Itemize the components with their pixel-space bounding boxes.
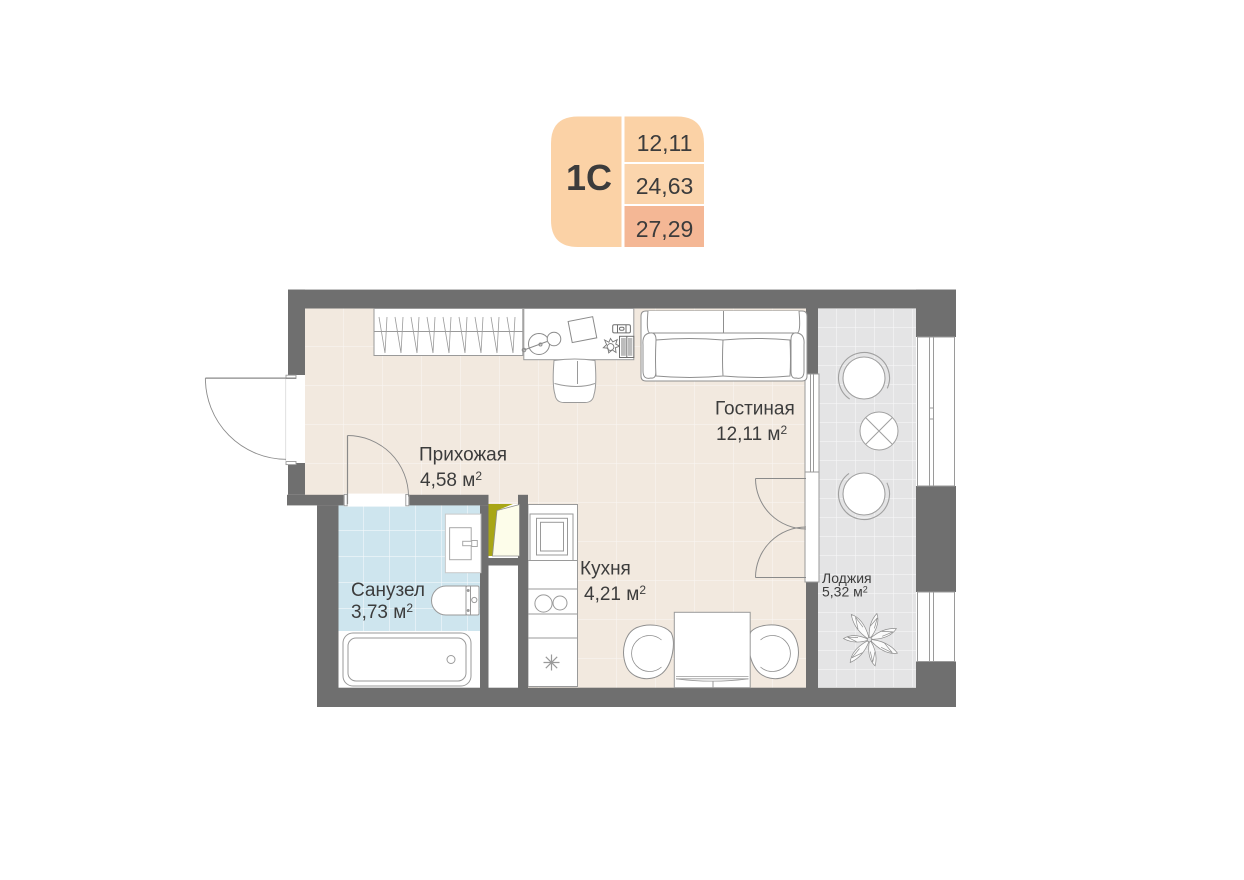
svg-text:1C: 1C: [566, 157, 612, 198]
svg-text:4,21 м2: 4,21 м2: [584, 583, 646, 605]
svg-text:Кухня: Кухня: [580, 559, 631, 580]
svg-text:27,29: 27,29: [636, 216, 694, 242]
svg-text:3,73 м2: 3,73 м2: [351, 601, 413, 623]
svg-text:Прихожая: Прихожая: [419, 445, 507, 466]
svg-text:Гостиная: Гостиная: [715, 399, 795, 420]
svg-text:Санузел: Санузел: [351, 580, 425, 601]
svg-text:24,63: 24,63: [636, 173, 694, 199]
svg-text:4,58 м2: 4,58 м2: [420, 469, 482, 491]
svg-text:5,32 м2: 5,32 м2: [822, 584, 868, 600]
svg-text:12,11 м2: 12,11 м2: [716, 423, 787, 445]
svg-text:12,11: 12,11: [637, 130, 693, 156]
